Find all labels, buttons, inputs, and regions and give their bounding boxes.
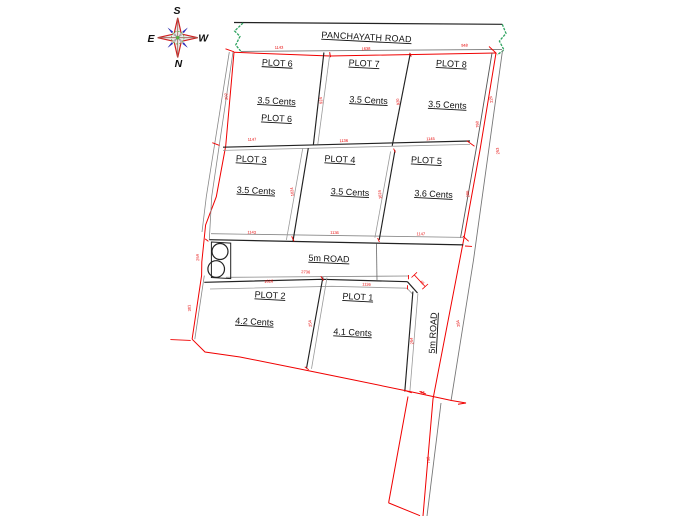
svg-text:3.5 Cents: 3.5 Cents (349, 94, 388, 106)
svg-text:PLOT 6: PLOT 6 (262, 57, 293, 69)
svg-text:E: E (147, 33, 155, 45)
svg-text:PLOT 5: PLOT 5 (411, 154, 442, 166)
svg-text:1147: 1147 (416, 231, 425, 236)
svg-text:1024: 1024 (289, 186, 295, 196)
svg-text:PANCHAYATH ROAD: PANCHAYATH ROAD (321, 30, 412, 45)
svg-text:3.5 Cents: 3.5 Cents (236, 185, 275, 197)
svg-text:5m ROAD: 5m ROAD (308, 253, 350, 265)
svg-text:4.2 Cents: 4.2 Cents (235, 316, 274, 328)
svg-text:254: 254 (195, 253, 201, 261)
svg-text:N: N (175, 58, 183, 70)
svg-text:920: 920 (395, 98, 401, 106)
svg-text:286: 286 (465, 190, 471, 198)
svg-text:3.6 Cents: 3.6 Cents (414, 188, 453, 200)
svg-text:PLOT 7: PLOT 7 (348, 58, 379, 70)
svg-text:PLOT 3: PLOT 3 (236, 153, 267, 165)
svg-text:3.5 Cents: 3.5 Cents (257, 95, 296, 107)
svg-text:4.1 Cents: 4.1 Cents (333, 326, 372, 338)
svg-text:253: 253 (495, 147, 501, 155)
svg-text:S: S (173, 5, 180, 17)
svg-text:1136: 1136 (362, 282, 372, 287)
svg-text:PLOT 8: PLOT 8 (436, 58, 467, 70)
svg-text:758: 758 (425, 456, 431, 464)
svg-text:W: W (198, 32, 209, 44)
svg-text:1024: 1024 (377, 189, 383, 199)
svg-text:1626: 1626 (264, 278, 274, 283)
svg-text:PLOT 2: PLOT 2 (254, 289, 285, 301)
svg-text:1147: 1147 (248, 137, 258, 142)
svg-text:2736: 2736 (301, 269, 311, 274)
svg-text:1145: 1145 (426, 136, 436, 141)
svg-text:3.5 Cents: 3.5 Cents (330, 186, 369, 198)
svg-text:3.5 Cents: 3.5 Cents (428, 99, 467, 111)
svg-text:760: 760 (474, 120, 480, 128)
svg-text:284: 284 (455, 319, 461, 327)
svg-text:PLOT 6: PLOT 6 (261, 112, 292, 124)
svg-text:1143: 1143 (247, 230, 256, 235)
svg-text:5m ROAD: 5m ROAD (427, 312, 439, 354)
svg-text:301: 301 (186, 304, 192, 312)
svg-text:45: 45 (419, 279, 426, 286)
svg-text:202: 202 (223, 92, 229, 100)
svg-text:1143: 1143 (275, 45, 285, 50)
svg-text:254: 254 (307, 319, 313, 327)
svg-text:1136: 1136 (339, 138, 349, 143)
svg-text:948: 948 (461, 43, 469, 48)
svg-text:PLOT 1: PLOT 1 (342, 291, 373, 303)
svg-text:PLOT 4: PLOT 4 (324, 153, 355, 165)
svg-text:1638: 1638 (361, 46, 371, 51)
svg-text:1136: 1136 (330, 230, 339, 235)
